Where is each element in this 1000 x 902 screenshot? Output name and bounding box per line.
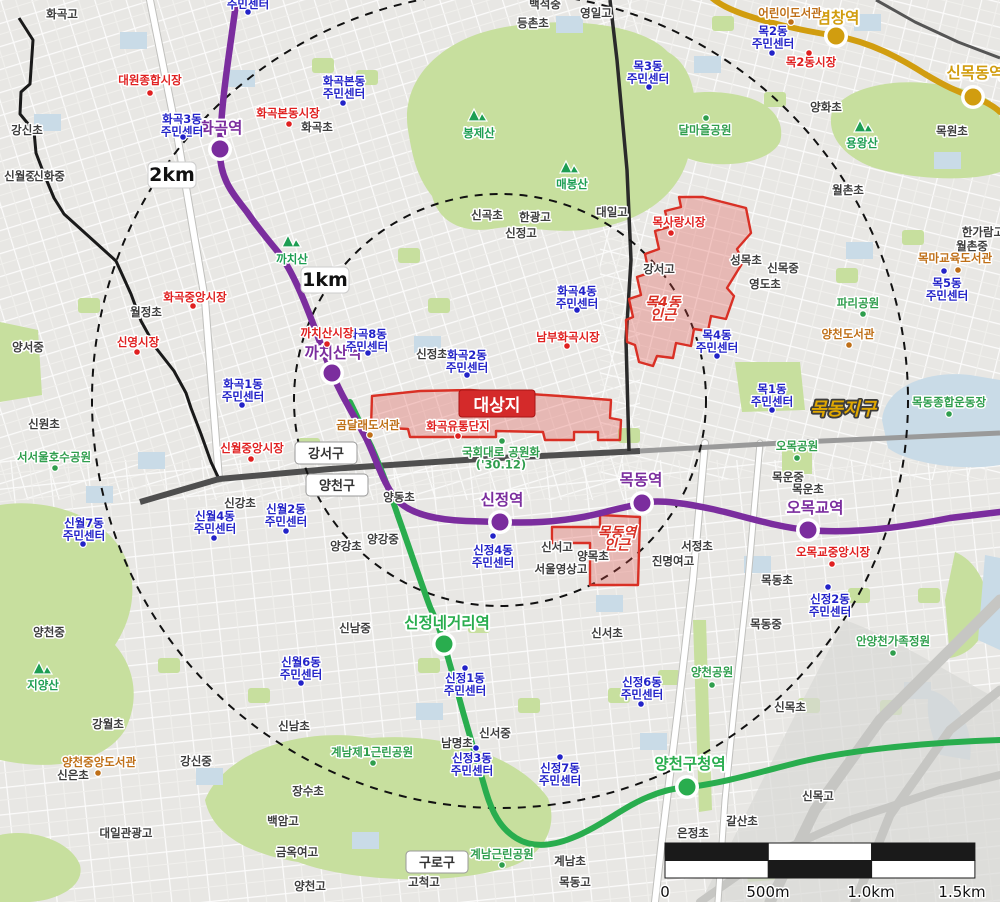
market-dot — [806, 50, 813, 57]
market-label: 까치산시장 — [301, 326, 354, 340]
park-label: 오목공원 — [776, 439, 818, 453]
school-label: 신화중 — [33, 169, 65, 183]
plan-district-label: 목동지구 — [810, 399, 878, 420]
school-label: 월촌초 — [832, 183, 864, 197]
park-dot — [52, 465, 59, 472]
community-center-label: 신월2동주민센터 — [265, 502, 307, 529]
school-label: 목동초 — [761, 573, 793, 587]
community-center-dot — [646, 84, 653, 91]
park-dot — [499, 438, 506, 445]
park-area — [0, 322, 42, 402]
library-label: 양천중앙도서관 — [62, 755, 136, 769]
school-label: 강신중 — [180, 754, 212, 768]
market-dot — [147, 90, 154, 97]
school-label: 신월중 — [4, 169, 36, 183]
school-label: 서정초 — [681, 539, 713, 553]
school-label: 목동고 — [559, 875, 591, 889]
station-marker[interactable] — [675, 775, 699, 799]
school-label: 서울영상고 — [535, 562, 588, 576]
library-dot — [95, 770, 102, 777]
scalebar-tick-label: 1.5km — [938, 883, 985, 901]
school-label: 금옥여고 — [276, 845, 319, 859]
green-patch — [918, 588, 940, 603]
school-label: 고척고 — [408, 875, 440, 889]
community-center-dot — [473, 745, 480, 752]
school-label: 신남중 — [339, 621, 371, 635]
community-center-label: 신월6동주민센터 — [280, 655, 322, 682]
green-patch — [398, 248, 420, 263]
green-patch — [78, 298, 100, 313]
community-center-dot — [490, 533, 497, 540]
scalebar-tick-label: 0 — [660, 883, 670, 901]
district-label: 양천구 — [319, 479, 355, 494]
station-marker[interactable] — [488, 510, 512, 534]
school-label: 양강중 — [367, 532, 399, 546]
station-dot — [492, 514, 509, 531]
school-label: 강신초 — [11, 123, 43, 137]
site-label: 대상지 — [474, 396, 521, 416]
library-dot — [955, 267, 962, 274]
school-label: 양천중 — [33, 625, 65, 639]
school-label: 신남초 — [278, 719, 310, 733]
community-center-dot — [298, 680, 305, 687]
market-dot — [829, 561, 836, 568]
school-label: 양동초 — [383, 490, 415, 504]
community-center-dot — [283, 528, 290, 535]
community-center-dot — [211, 535, 218, 542]
station-label: 신정역 — [481, 491, 524, 509]
school-label: 양강초 — [330, 539, 362, 553]
library-dot — [846, 342, 853, 349]
school-label: 신정초 — [416, 347, 448, 361]
school-label: 신곡초 — [471, 208, 503, 222]
scalebar-segment — [665, 843, 768, 861]
schoolyard-block — [846, 242, 873, 259]
school-label: 목원초 — [936, 124, 968, 138]
park-dot — [370, 760, 377, 767]
green-patch — [476, 34, 498, 49]
market-label: 화곡중앙시장 — [163, 290, 227, 304]
school-label: 양화초 — [810, 100, 842, 114]
market-dot — [455, 433, 462, 440]
school-label: 신목고 — [802, 789, 834, 803]
schoolyard-block — [352, 832, 379, 849]
map-svg: 화곡역까치산역신정역목동역오목교역신정네거리역양천구청역염창역신목동역화곡고강신… — [0, 0, 1000, 902]
community-center-dot — [769, 50, 776, 57]
community-center-label: 신정4동주민센터 — [472, 543, 514, 570]
park-label: 양천공원 — [691, 665, 733, 679]
park-label: 계남제1근린공원 — [331, 745, 413, 759]
green-patch — [712, 16, 734, 31]
market-dot — [324, 341, 331, 348]
market-label: 목2동시장 — [786, 55, 837, 69]
library-label: 어린이도서관 — [758, 6, 822, 20]
community-center-dot — [365, 350, 372, 357]
community-center-dot — [80, 541, 87, 548]
school-label: 신강초 — [224, 496, 256, 510]
scalebar-segment — [872, 843, 975, 861]
park-dot — [946, 411, 953, 418]
market-label: 신월중앙시장 — [220, 441, 284, 455]
community-center-dot — [638, 701, 645, 708]
community-center-dot — [340, 100, 347, 107]
market-dot — [668, 230, 675, 237]
market-label: 신영시장 — [117, 335, 160, 349]
community-center-dot — [941, 268, 948, 275]
school-label: 영일고 — [580, 6, 612, 20]
station-dot — [436, 636, 453, 653]
green-patch — [428, 298, 450, 313]
school-label: 갈산초 — [726, 814, 758, 828]
station-label: 양천구청역 — [654, 754, 725, 773]
park-label: 서서울호수공원 — [17, 450, 91, 464]
schoolyard-block — [694, 56, 721, 73]
scalebar-tick-label: 1.0km — [847, 883, 894, 901]
school-label: 신정고 — [505, 226, 537, 240]
park-dot — [860, 311, 867, 318]
station-label: 신정네거리역 — [404, 614, 490, 632]
school-label: 백암고 — [267, 814, 299, 828]
schoolyard-block — [138, 452, 165, 469]
market-label: 남부화곡시장 — [536, 330, 600, 344]
school-label: 강서고 — [643, 262, 675, 276]
station-marker[interactable] — [796, 518, 820, 542]
schoolyard-block — [416, 703, 443, 720]
school-label: 목동중 — [750, 617, 782, 631]
community-center-label: 신정7동주민센터 — [539, 761, 581, 788]
schoolyard-block — [120, 32, 147, 49]
community-center-dot — [464, 372, 471, 379]
scalebar-segment — [665, 861, 768, 879]
school-label: 신은초 — [57, 768, 89, 782]
community-center-label: 신정1동주민센터 — [444, 671, 486, 698]
school-label: 영도초 — [749, 277, 781, 291]
community-center-dot — [714, 353, 721, 360]
station-label: 염창역 — [817, 8, 860, 27]
park-dot — [703, 115, 710, 122]
community-center-dot — [825, 584, 832, 591]
school-label: 신서초 — [591, 626, 623, 640]
green-patch — [988, 146, 1000, 161]
scalebar-segment — [768, 843, 871, 861]
community-center-label: 화곡1동주민센터 — [222, 377, 264, 404]
scalebar-segment — [768, 861, 871, 879]
mountain-label: 용왕산 — [846, 136, 878, 150]
mountain-label: 지양산 — [27, 678, 59, 692]
school-label: 대일관광고 — [100, 826, 153, 840]
map-canvas: 화곡역까치산역신정역목동역오목교역신정네거리역양천구청역염창역신목동역화곡고강신… — [0, 0, 1000, 902]
school-label: 대일고 — [596, 205, 628, 219]
school-label: 은정초 — [677, 826, 709, 840]
school-label: 한광고 — [519, 210, 551, 224]
schoolyard-block — [934, 152, 961, 169]
market-dot — [564, 343, 571, 350]
green-patch — [902, 230, 924, 245]
school-label: 화곡초 — [301, 120, 333, 134]
schoolyard-block — [640, 733, 667, 750]
library-label: 곰달래도서관 — [336, 418, 400, 432]
district-label: 구로구 — [419, 856, 455, 871]
market-label: 화곡유통단지 — [426, 419, 489, 433]
schoolyard-block — [86, 486, 113, 503]
ring-distance-label: 1km — [302, 269, 348, 291]
station-label: 목동역 — [620, 471, 663, 489]
community-center-dot — [574, 307, 581, 314]
station-marker[interactable] — [208, 137, 232, 161]
market-dot — [190, 303, 197, 310]
station-marker[interactable] — [630, 491, 654, 515]
station-dot — [212, 141, 229, 158]
park-label: 파리공원 — [837, 296, 879, 310]
station-dot — [679, 779, 696, 796]
station-dot — [324, 365, 341, 382]
school-label: 성목초 — [730, 253, 762, 267]
library-dot — [788, 19, 795, 26]
market-label: 대원종합시장 — [118, 73, 182, 87]
station-dot — [634, 495, 651, 512]
community-center-label: 신월4동주민센터 — [194, 509, 236, 536]
school-label: 등촌초 — [517, 16, 549, 30]
school-label: 신목초 — [774, 700, 806, 714]
school-label: 남명초 — [441, 736, 473, 750]
station-label: 화곡역 — [200, 118, 243, 137]
school-label: 신목중 — [767, 261, 799, 275]
mountain-label: 봉제산 — [463, 126, 495, 140]
community-center-label: 신정6동주민센터 — [621, 675, 663, 702]
district-label: 강서구 — [308, 446, 344, 462]
schoolyard-block — [596, 595, 623, 612]
market-label: 화곡본동시장 — [256, 106, 320, 120]
green-patch — [312, 58, 334, 73]
community-center-label: 신정3동주민센터 — [451, 751, 493, 778]
market-label: 목사랑시장 — [653, 215, 706, 229]
scalebar-tick-label: 500m — [746, 883, 789, 901]
station-marker[interactable] — [961, 85, 985, 109]
station-marker[interactable] — [824, 24, 848, 48]
library-dot — [367, 432, 374, 439]
market-label: 오목교중앙시장 — [796, 545, 870, 559]
community-center-label: 화곡본동주민센터 — [323, 74, 366, 101]
community-center-dot — [557, 754, 564, 761]
ring-distance-label: 2km — [149, 164, 195, 186]
market-dot — [286, 121, 293, 128]
school-label: 신서중 — [479, 726, 511, 740]
station-marker[interactable] — [432, 632, 456, 656]
community-center-dot — [462, 665, 469, 672]
park-dot — [794, 455, 801, 462]
library-label: 양천도서관 — [822, 327, 875, 341]
school-label: 양서중 — [12, 340, 44, 354]
green-patch — [158, 658, 180, 673]
mountain-label: 매봉산 — [556, 177, 588, 191]
community-center-dot — [180, 134, 187, 141]
school-label: 장수초 — [292, 784, 324, 798]
scalebar-segment — [872, 861, 975, 879]
schoolyard-block — [196, 768, 223, 785]
station-dot — [828, 28, 845, 45]
school-label: 신서고 — [541, 540, 573, 554]
community-center-label: 신월7동주민센터 — [63, 516, 105, 543]
library-label: 목마교육도서관 — [918, 251, 992, 265]
school-label: 강월초 — [92, 717, 124, 731]
school-label: 신원초 — [28, 417, 60, 431]
park-dot — [890, 650, 897, 657]
green-patch — [836, 268, 858, 283]
green-patch — [518, 698, 540, 713]
station-dot — [800, 522, 817, 539]
mountain-label: 까치산 — [276, 252, 308, 266]
school-label: 진명여고 — [652, 554, 695, 568]
school-label: 양천고 — [294, 879, 326, 893]
community-center-dot — [769, 407, 776, 414]
community-center-label: 신정2동주민센터 — [809, 592, 851, 619]
station-label: 신목동역 — [946, 64, 1000, 82]
schoolyard-block — [556, 16, 583, 33]
park-label: 안양천가족정원 — [856, 634, 930, 648]
park-label: 계남근린공원 — [470, 847, 533, 861]
market-dot — [134, 349, 141, 356]
station-label: 오목교역 — [786, 499, 843, 517]
school-label: 화곡고 — [46, 7, 78, 21]
community-center-dot — [245, 9, 252, 16]
park-dot — [709, 682, 716, 689]
station-dot — [965, 89, 982, 106]
school-label: 한가람고 — [962, 225, 1000, 239]
school-label: 월정초 — [130, 305, 162, 319]
park-dot — [499, 862, 506, 869]
park-label: 목동종합운동장 — [912, 395, 986, 409]
community-center-label: 화곡2동주민센터 — [446, 348, 488, 375]
station-marker[interactable] — [320, 361, 344, 385]
market-dot — [248, 456, 255, 463]
school-label: 목운초 — [792, 482, 824, 496]
park-label: 달마을공원 — [679, 123, 732, 137]
green-patch — [848, 588, 870, 603]
school-label: 백석중 — [529, 0, 561, 11]
green-patch — [248, 688, 270, 703]
school-label: 계남초 — [554, 854, 586, 868]
green-patch — [418, 658, 440, 673]
community-center-dot — [239, 402, 246, 409]
